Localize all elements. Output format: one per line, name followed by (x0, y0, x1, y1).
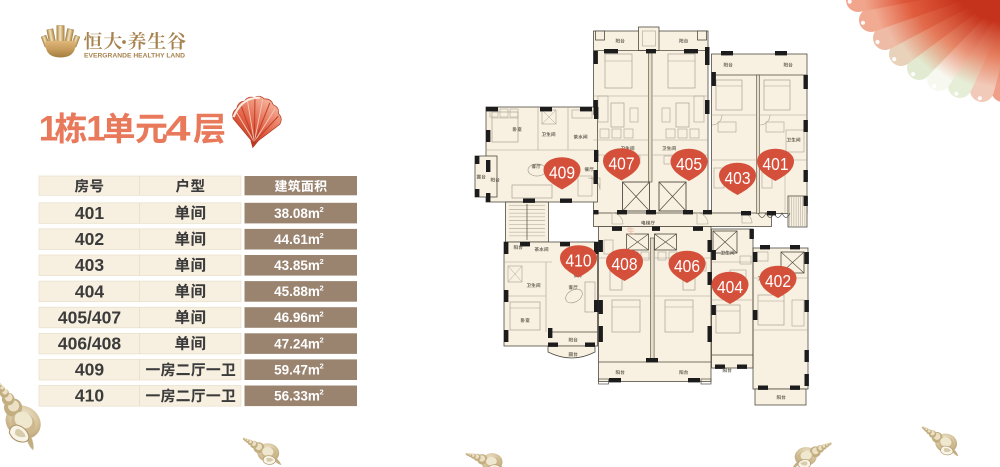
svg-text:56.33m: 56.33m (274, 389, 320, 404)
svg-text:409: 409 (75, 360, 104, 380)
svg-text:38.08m: 38.08m (274, 206, 320, 221)
svg-text:407: 407 (609, 154, 635, 174)
svg-text:1: 1 (86, 110, 105, 149)
svg-text:405/407: 405/407 (58, 307, 121, 327)
svg-text:404: 404 (717, 277, 743, 297)
svg-text:2: 2 (320, 257, 324, 266)
svg-text:2: 2 (320, 309, 324, 318)
svg-text:402: 402 (765, 271, 791, 291)
svg-text:2: 2 (320, 231, 324, 240)
svg-text:44.61m: 44.61m (274, 232, 320, 247)
svg-text:401: 401 (75, 203, 104, 223)
svg-text:403: 403 (75, 255, 104, 275)
svg-text:2: 2 (320, 362, 324, 371)
svg-text:409: 409 (549, 163, 575, 183)
svg-text:406: 406 (674, 256, 700, 276)
svg-text:EVERGRANDE HEALTHY LAND: EVERGRANDE HEALTHY LAND (84, 53, 185, 60)
svg-text:59.47m: 59.47m (274, 362, 320, 377)
svg-text:406/408: 406/408 (58, 334, 122, 354)
svg-text:403: 403 (725, 168, 751, 188)
svg-text:410: 410 (566, 251, 592, 271)
svg-text:4: 4 (166, 110, 192, 149)
svg-text:43.85m: 43.85m (274, 258, 320, 273)
svg-text:404: 404 (75, 281, 104, 301)
svg-text:2: 2 (320, 205, 324, 214)
svg-text:46.96m: 46.96m (274, 310, 320, 325)
svg-text:402: 402 (75, 229, 104, 249)
svg-text:1: 1 (39, 110, 58, 149)
svg-text:405: 405 (676, 154, 702, 174)
svg-text:2: 2 (320, 283, 324, 292)
svg-text:408: 408 (612, 254, 638, 274)
svg-text:47.24m: 47.24m (274, 336, 320, 351)
svg-text:2: 2 (320, 388, 324, 397)
svg-text:401: 401 (763, 154, 789, 174)
svg-text:45.88m: 45.88m (274, 284, 320, 299)
svg-text:410: 410 (75, 386, 104, 406)
svg-text:2: 2 (320, 336, 324, 345)
